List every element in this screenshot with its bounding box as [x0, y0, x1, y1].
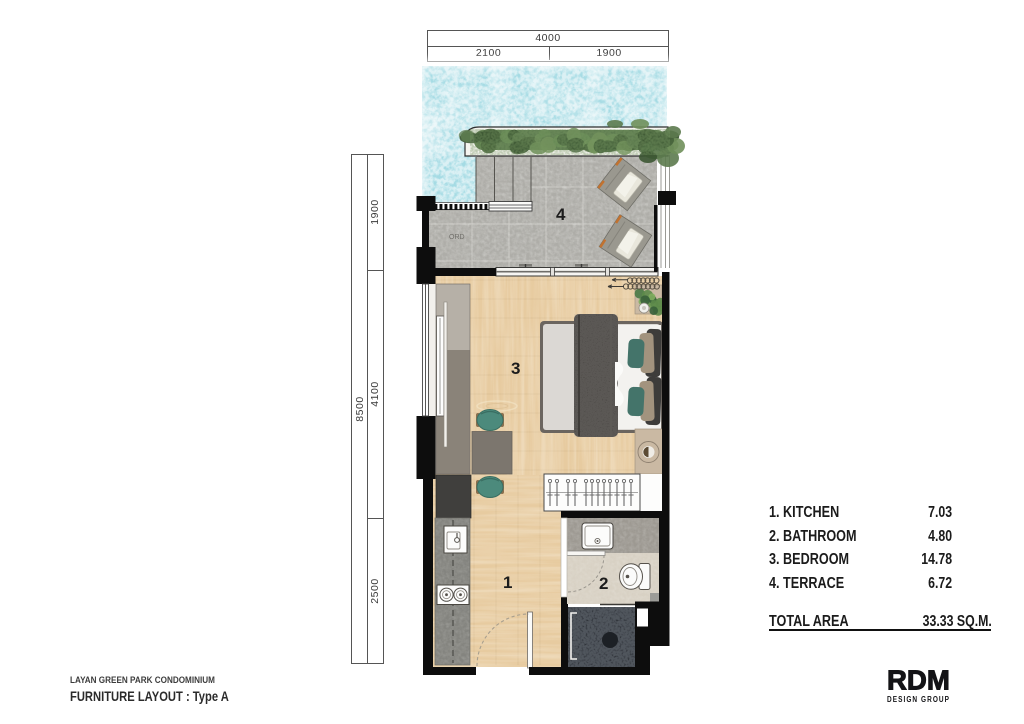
svg-text:4: 4	[556, 205, 566, 224]
svg-text:ORD: ORD	[449, 234, 465, 241]
svg-text:2: 2	[599, 574, 608, 593]
svg-text:1: 1	[503, 573, 512, 592]
svg-text:3: 3	[511, 359, 520, 378]
